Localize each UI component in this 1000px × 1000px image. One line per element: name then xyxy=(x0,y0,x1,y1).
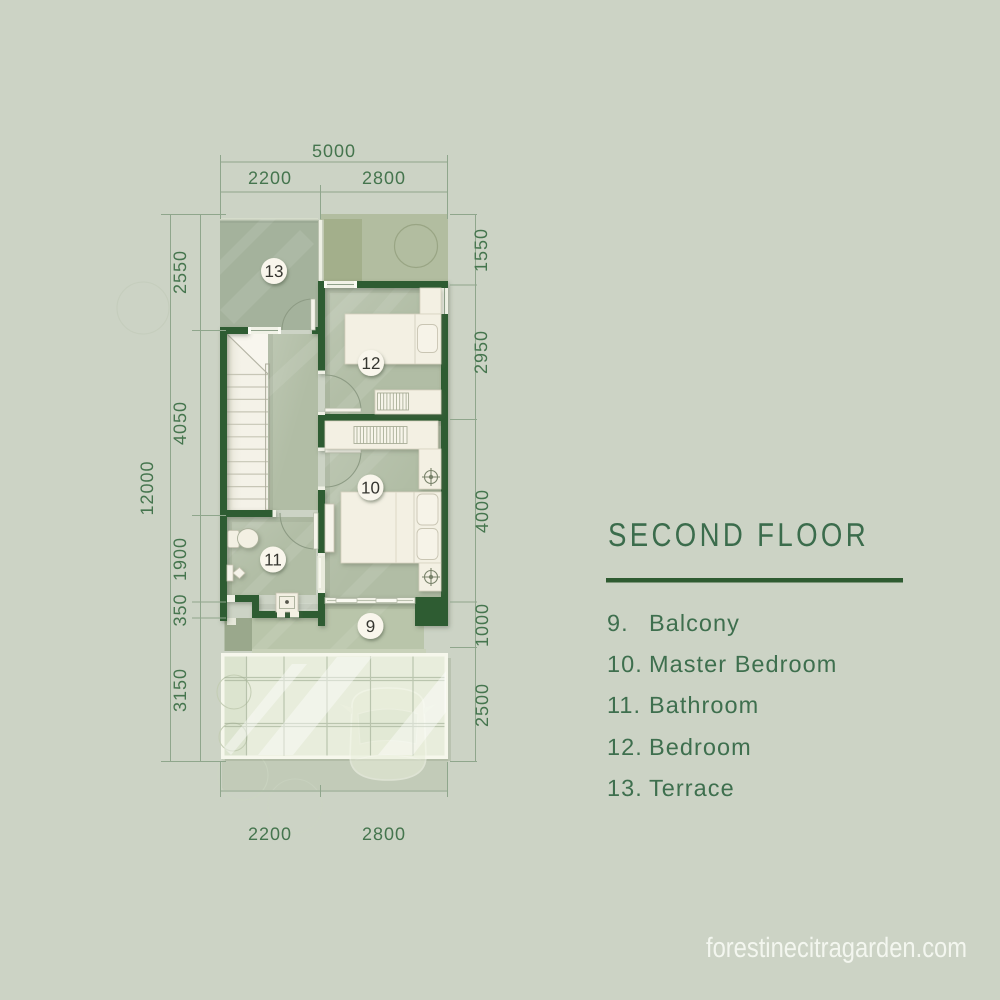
svg-text:350: 350 xyxy=(170,593,190,626)
svg-text:4050: 4050 xyxy=(170,401,190,445)
svg-text:10.: 10. xyxy=(607,651,643,677)
svg-text:12000: 12000 xyxy=(137,460,157,515)
svg-text:1900: 1900 xyxy=(170,537,190,581)
svg-text:9.: 9. xyxy=(607,610,629,636)
svg-text:13: 13 xyxy=(265,262,284,281)
svg-text:5000: 5000 xyxy=(312,141,356,161)
svg-text:Bathroom: Bathroom xyxy=(649,692,759,718)
svg-text:forestinecitragarden.com: forestinecitragarden.com xyxy=(706,932,967,963)
svg-text:2800: 2800 xyxy=(362,168,406,188)
svg-text:2950: 2950 xyxy=(471,330,491,374)
svg-text:2500: 2500 xyxy=(472,683,492,727)
svg-text:Bedroom: Bedroom xyxy=(649,734,752,760)
svg-text:13.: 13. xyxy=(607,775,643,801)
svg-text:4000: 4000 xyxy=(472,489,492,533)
svg-text:12.: 12. xyxy=(607,734,643,760)
svg-text:11.: 11. xyxy=(607,692,641,718)
svg-text:11: 11 xyxy=(264,551,282,570)
svg-text:10: 10 xyxy=(361,479,380,498)
svg-text:9: 9 xyxy=(366,617,375,636)
svg-text:1550: 1550 xyxy=(471,228,491,272)
svg-text:1000: 1000 xyxy=(472,603,492,647)
svg-text:Terrace: Terrace xyxy=(649,775,735,801)
svg-text:3150: 3150 xyxy=(170,668,190,712)
svg-text:Balcony: Balcony xyxy=(649,610,740,636)
svg-text:2800: 2800 xyxy=(362,824,406,844)
svg-text:2200: 2200 xyxy=(248,168,292,188)
svg-text:2200: 2200 xyxy=(248,824,292,844)
svg-text:Master Bedroom: Master Bedroom xyxy=(649,651,837,677)
svg-text:SECOND FLOOR: SECOND FLOOR xyxy=(608,516,869,553)
svg-text:12: 12 xyxy=(362,354,381,373)
svg-text:2550: 2550 xyxy=(170,250,190,294)
